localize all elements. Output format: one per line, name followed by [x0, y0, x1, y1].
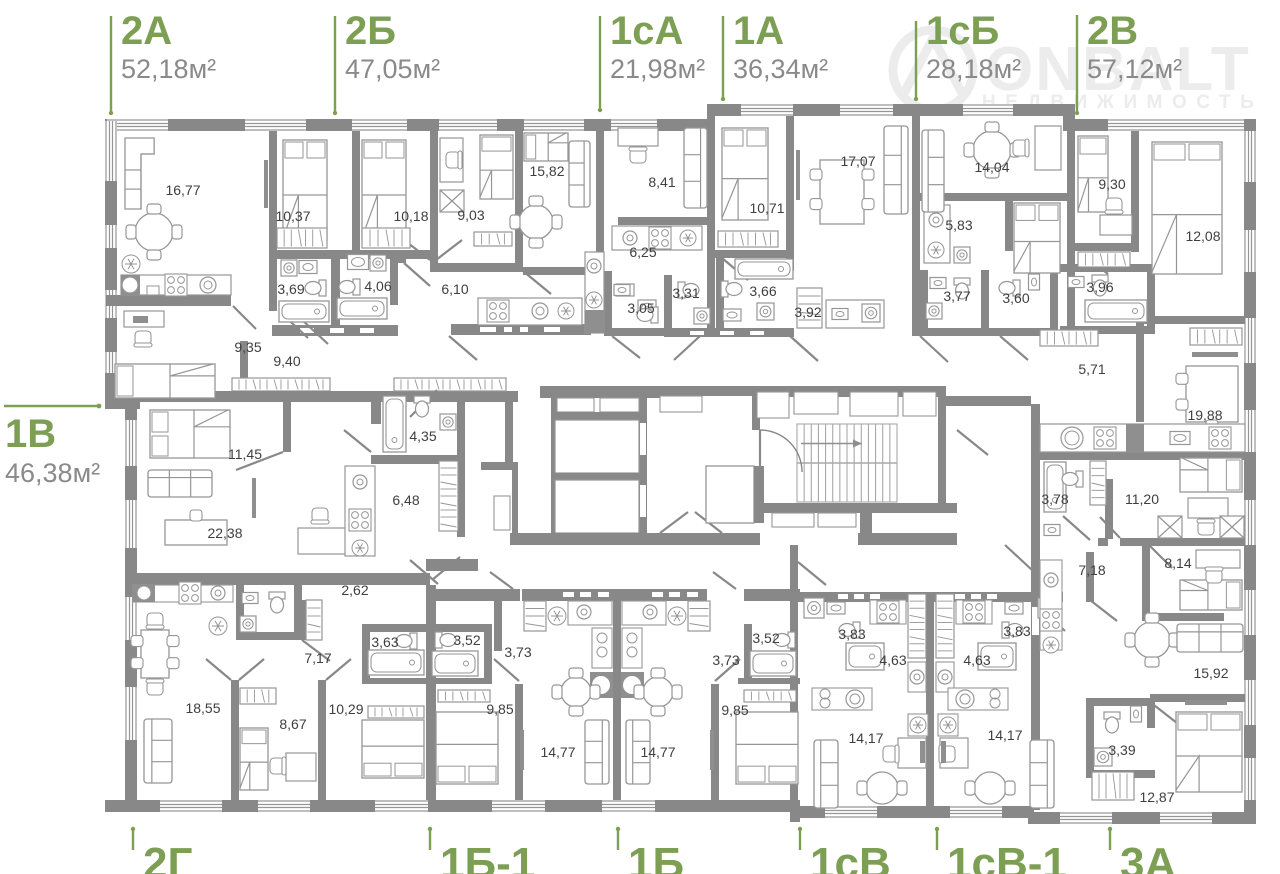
svg-text:14,04: 14,04	[974, 159, 1009, 175]
svg-text:5,83: 5,83	[945, 217, 972, 233]
svg-text:2А: 2А	[121, 9, 172, 53]
svg-text:1сВ: 1сВ	[810, 839, 891, 874]
svg-text:1сА: 1сА	[610, 9, 683, 53]
svg-text:46,38м²: 46,38м²	[5, 458, 100, 488]
svg-text:15,92: 15,92	[1193, 665, 1228, 681]
svg-text:10,18: 10,18	[393, 208, 428, 224]
svg-text:2Б: 2Б	[345, 9, 396, 53]
svg-text:1сВ-1: 1сВ-1	[947, 839, 1067, 874]
svg-text:3,78: 3,78	[1041, 491, 1068, 507]
svg-text:3,92: 3,92	[794, 304, 821, 320]
svg-text:3,05: 3,05	[627, 300, 654, 316]
svg-text:11,45: 11,45	[228, 446, 262, 462]
svg-text:9,03: 9,03	[457, 207, 484, 223]
svg-text:10,37: 10,37	[275, 208, 310, 224]
svg-text:3,39: 3,39	[1108, 742, 1135, 758]
svg-text:16,77: 16,77	[165, 182, 200, 198]
svg-text:22,38: 22,38	[207, 525, 242, 541]
svg-text:2,62: 2,62	[341, 582, 368, 598]
svg-text:8,14: 8,14	[1164, 555, 1191, 571]
svg-text:4,06: 4,06	[364, 278, 391, 294]
svg-text:7,17: 7,17	[304, 650, 331, 666]
svg-text:3,96: 3,96	[1086, 279, 1113, 295]
svg-text:5,71: 5,71	[1078, 361, 1105, 377]
svg-text:4,63: 4,63	[963, 652, 990, 668]
svg-text:21,98м²: 21,98м²	[610, 54, 705, 84]
svg-text:3,66: 3,66	[749, 283, 776, 299]
svg-text:10,71: 10,71	[749, 200, 784, 216]
svg-text:1В: 1В	[5, 412, 56, 456]
svg-text:9,85: 9,85	[486, 701, 513, 717]
svg-text:3,31: 3,31	[672, 285, 699, 301]
svg-text:14,77: 14,77	[540, 744, 575, 760]
svg-text:3,73: 3,73	[712, 652, 739, 668]
svg-text:18,55: 18,55	[185, 700, 220, 716]
svg-text:10,29: 10,29	[328, 701, 363, 717]
svg-text:1Б-1: 1Б-1	[440, 839, 535, 874]
svg-text:17,07: 17,07	[840, 153, 875, 169]
svg-text:8,67: 8,67	[279, 716, 306, 732]
svg-text:9,30: 9,30	[1098, 176, 1125, 192]
svg-text:14,17: 14,17	[987, 727, 1022, 743]
svg-text:3,83: 3,83	[838, 626, 865, 642]
svg-text:19,88: 19,88	[1187, 407, 1222, 423]
svg-text:2Г: 2Г	[143, 839, 192, 874]
svg-text:6,48: 6,48	[392, 492, 419, 508]
svg-text:4,63: 4,63	[879, 652, 906, 668]
svg-text:6,10: 6,10	[441, 281, 468, 297]
svg-text:3А: 3А	[1120, 839, 1176, 874]
svg-text:14,77: 14,77	[640, 744, 675, 760]
svg-text:3,77: 3,77	[943, 288, 970, 304]
svg-text:12,87: 12,87	[1139, 789, 1174, 805]
svg-text:52,18м²: 52,18м²	[121, 54, 216, 84]
svg-text:1Б: 1Б	[628, 839, 684, 874]
svg-text:3,73: 3,73	[504, 644, 531, 660]
svg-text:3,52: 3,52	[752, 630, 779, 646]
svg-text:3,83: 3,83	[1003, 623, 1030, 639]
svg-text:3,63: 3,63	[371, 634, 398, 650]
svg-text:9,40: 9,40	[273, 353, 300, 369]
svg-text:9,35: 9,35	[234, 339, 261, 355]
svg-text:3,60: 3,60	[1002, 290, 1029, 306]
svg-text:7,18: 7,18	[1078, 562, 1105, 578]
svg-text:36,34м²: 36,34м²	[733, 54, 828, 84]
svg-text:9,85: 9,85	[721, 702, 748, 718]
svg-text:11,20: 11,20	[1125, 491, 1159, 507]
svg-text:12,08: 12,08	[1185, 228, 1220, 244]
svg-text:1сБ: 1сБ	[926, 9, 999, 53]
svg-text:3,69: 3,69	[277, 281, 304, 297]
svg-text:47,05м²: 47,05м²	[345, 54, 440, 84]
svg-text:57,12м²: 57,12м²	[1087, 54, 1182, 84]
svg-text:15,82: 15,82	[529, 163, 564, 179]
svg-text:6,25: 6,25	[629, 244, 656, 260]
svg-text:1А: 1А	[733, 9, 784, 53]
svg-text:14,17: 14,17	[848, 730, 883, 746]
svg-text:28,18м²: 28,18м²	[926, 54, 1021, 84]
svg-text:2В: 2В	[1087, 9, 1138, 53]
svg-text:4,35: 4,35	[409, 428, 436, 444]
svg-text:3,52: 3,52	[453, 632, 480, 648]
svg-text:8,41: 8,41	[648, 174, 675, 190]
